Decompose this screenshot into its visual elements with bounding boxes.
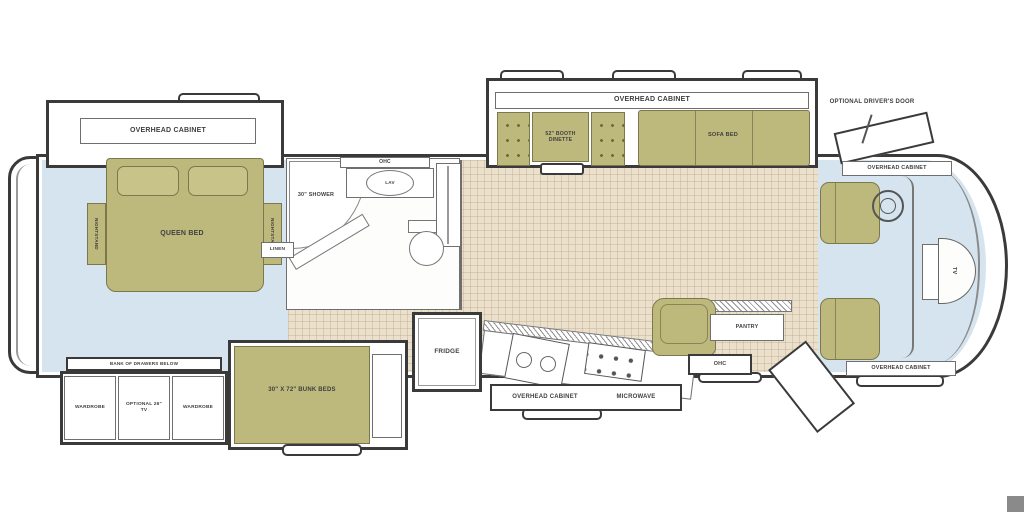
- wardrobe-right-label: WARDROBE: [172, 376, 224, 440]
- hall-wall: [460, 160, 462, 310]
- pillow-left: [117, 166, 179, 196]
- cockpit-overhead-top-label: OVERHEAD CABINET: [842, 161, 952, 176]
- front-tv-label: TV: [946, 252, 962, 290]
- pillow-right: [188, 166, 248, 196]
- cockpit-overhead-bottom-label: OVERHEAD CABINET: [846, 361, 956, 376]
- optional-tv-label: OPTIONAL 26" TV: [122, 382, 166, 434]
- shower-label: 30" SHOWER: [295, 185, 337, 205]
- bunk-beds-label: 30" X 72" BUNK BEDS: [262, 378, 342, 404]
- fridge-label: FRIDGE: [418, 318, 476, 386]
- pantry-label: PANTRY: [710, 314, 784, 341]
- lav-label: LAV: [366, 174, 414, 192]
- living-overhead-cabinet-label: OVERHEAD CABINET: [495, 92, 809, 109]
- bath-ohc-label: OHC: [340, 157, 430, 168]
- microwave-label: MICROWAVE: [596, 384, 676, 411]
- bunk-ladder: [372, 354, 402, 438]
- queen-bed-label: QUEEN BED: [160, 220, 204, 248]
- barrel-chair-seat: [660, 304, 708, 344]
- bunk-bottom-tab: [282, 444, 362, 456]
- bath-wardrobe: [436, 163, 462, 247]
- dinette-bench-right: [591, 112, 625, 166]
- rv-floorplan: OVERHEAD CABINET QUEEN BED NIGHTSTAND NI…: [0, 0, 1024, 512]
- dinette-table-tab: [540, 163, 584, 175]
- optional-driver-door-label: OPTIONAL DRIVER'S DOOR: [826, 92, 918, 114]
- dinette-bench-left: [497, 112, 530, 166]
- wardrobe-left-label: WARDROBE: [64, 376, 116, 440]
- linen-label: LINEN: [261, 242, 294, 258]
- kitchen-overhead-label: OVERHEAD CABINET: [496, 384, 594, 411]
- dinette-label: 52" BOOTH DINETTE: [538, 118, 583, 156]
- kitchen-sink: [504, 333, 570, 389]
- living-ohc-label: OHC: [688, 354, 752, 375]
- sofa-bed-label: SOFA BED: [688, 128, 758, 142]
- nightstand-left-label: NIGHTSTAND: [87, 203, 106, 265]
- toilet-bowl: [409, 231, 444, 266]
- bath-wardrobe-rod: [447, 166, 449, 244]
- bedroom-overhead-cabinet-label: OVERHEAD CABINET: [80, 118, 256, 144]
- driver-seat: [820, 182, 880, 244]
- drawer-bank-label: BANK OF DRAWERS BELOW: [66, 357, 222, 371]
- passenger-seat: [820, 298, 880, 360]
- corner-resize-square: [1007, 496, 1024, 512]
- cockpit-bottom-tab: [856, 375, 944, 387]
- steering-column: [880, 198, 896, 214]
